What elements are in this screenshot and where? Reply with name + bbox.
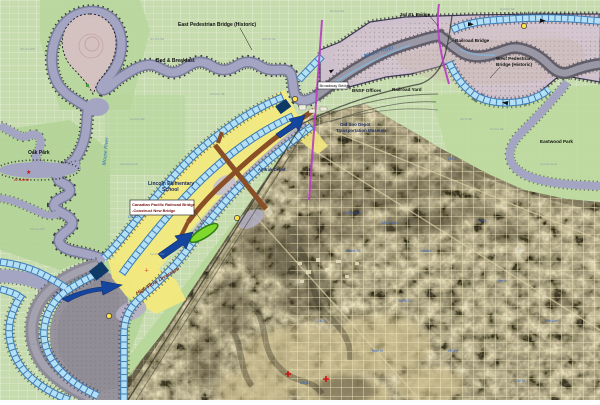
svg-text:Bridge (Historic): Bridge (Historic): [496, 62, 532, 67]
svg-text:2nd Ave: 2nd Ave: [420, 249, 432, 253]
svg-text:Amtrak Depot: Amtrak Depot: [258, 167, 286, 172]
svg-text:3rd Ave NE: 3rd Ave NE: [150, 37, 164, 41]
svg-text:1st Ave SE: 1st Ave SE: [490, 127, 504, 131]
svg-text:10th St NE: 10th St NE: [262, 37, 276, 41]
svg-text:3rd St SE: 3rd St SE: [398, 299, 412, 303]
svg-text:1st Ave SW: 1st Ave SW: [150, 252, 165, 256]
svg-text:US 2 & 52: US 2 & 52: [346, 211, 362, 215]
svg-text:2nd Ave NE: 2nd Ave NE: [500, 7, 515, 11]
svg-text:School: School: [162, 187, 179, 193]
svg-text:13th St: 13th St: [515, 379, 525, 383]
svg-text:4th St: 4th St: [478, 219, 486, 223]
svg-text:4th Ave NW: 4th Ave NW: [20, 47, 35, 51]
svg-text:BNSF Offices: BNSF Offices: [352, 88, 382, 93]
svg-text:US 83: US 83: [300, 381, 310, 385]
svg-text:8th Ave: 8th Ave: [448, 349, 459, 353]
svg-text:2nd Ave NE: 2nd Ave NE: [210, 92, 225, 96]
svg-text:11th Ave SW: 11th Ave SW: [30, 342, 46, 346]
svg-text:West Pedestrian: West Pedestrian: [496, 56, 532, 61]
svg-text:Transportation Museum: Transportation Museum: [336, 128, 386, 133]
svg-text:Central Ave W: Central Ave W: [120, 162, 138, 166]
svg-text:Al Baeld: Al Baeld: [13, 177, 30, 182]
svg-text:US 2 & 52: US 2 & 52: [382, 221, 398, 225]
svg-text:3rd St. Bridge: 3rd St. Bridge: [400, 12, 431, 17]
svg-text:3rd Ave NE: 3rd Ave NE: [330, 9, 344, 13]
svg-text:Oak Park: Oak Park: [28, 150, 50, 156]
svg-text:East Pedestrian Bridge (Histor: East Pedestrian Bridge (Historic): [178, 22, 256, 28]
svg-text:8th St NE: 8th St NE: [195, 57, 207, 61]
svg-text:US 2: US 2: [448, 157, 456, 161]
svg-text:10th Ave: 10th Ave: [545, 319, 558, 323]
svg-text:Eastwood Park: Eastwood Park: [540, 139, 573, 144]
svg-text:-Construct New Bridge: -Construct New Bridge: [132, 208, 176, 213]
svg-text:Main St: Main St: [372, 349, 383, 353]
svg-text:Railroad Yard: Railroad Yard: [392, 87, 422, 92]
svg-text:Railroad Bridge: Railroad Bridge: [455, 38, 490, 43]
svg-text:Canadian Pacific Railroad Brid: Canadian Pacific Railroad Bridge: [132, 202, 196, 207]
svg-text:4th Ave SE: 4th Ave SE: [345, 249, 361, 253]
svg-text:US 83: US 83: [128, 215, 138, 219]
svg-text:★: ★: [26, 169, 31, 176]
svg-text:＋: ＋: [144, 268, 149, 274]
svg-text:6th St: 6th St: [498, 279, 506, 283]
svg-text:1st Ave NW: 1st Ave NW: [130, 117, 145, 121]
svg-text:1st St: 1st St: [318, 319, 326, 323]
svg-text:4th St NE: 4th St NE: [460, 117, 472, 121]
svg-text:Broadway Bridge: Broadway Bridge: [320, 83, 351, 88]
svg-text:Central Ave E: Central Ave E: [540, 162, 557, 166]
svg-text:Old Soo Depot: Old Soo Depot: [340, 122, 371, 127]
svg-text:Bed & Breakfast: Bed & Breakfast: [156, 58, 195, 64]
svg-text:7th Ave SW: 7th Ave SW: [30, 227, 45, 231]
